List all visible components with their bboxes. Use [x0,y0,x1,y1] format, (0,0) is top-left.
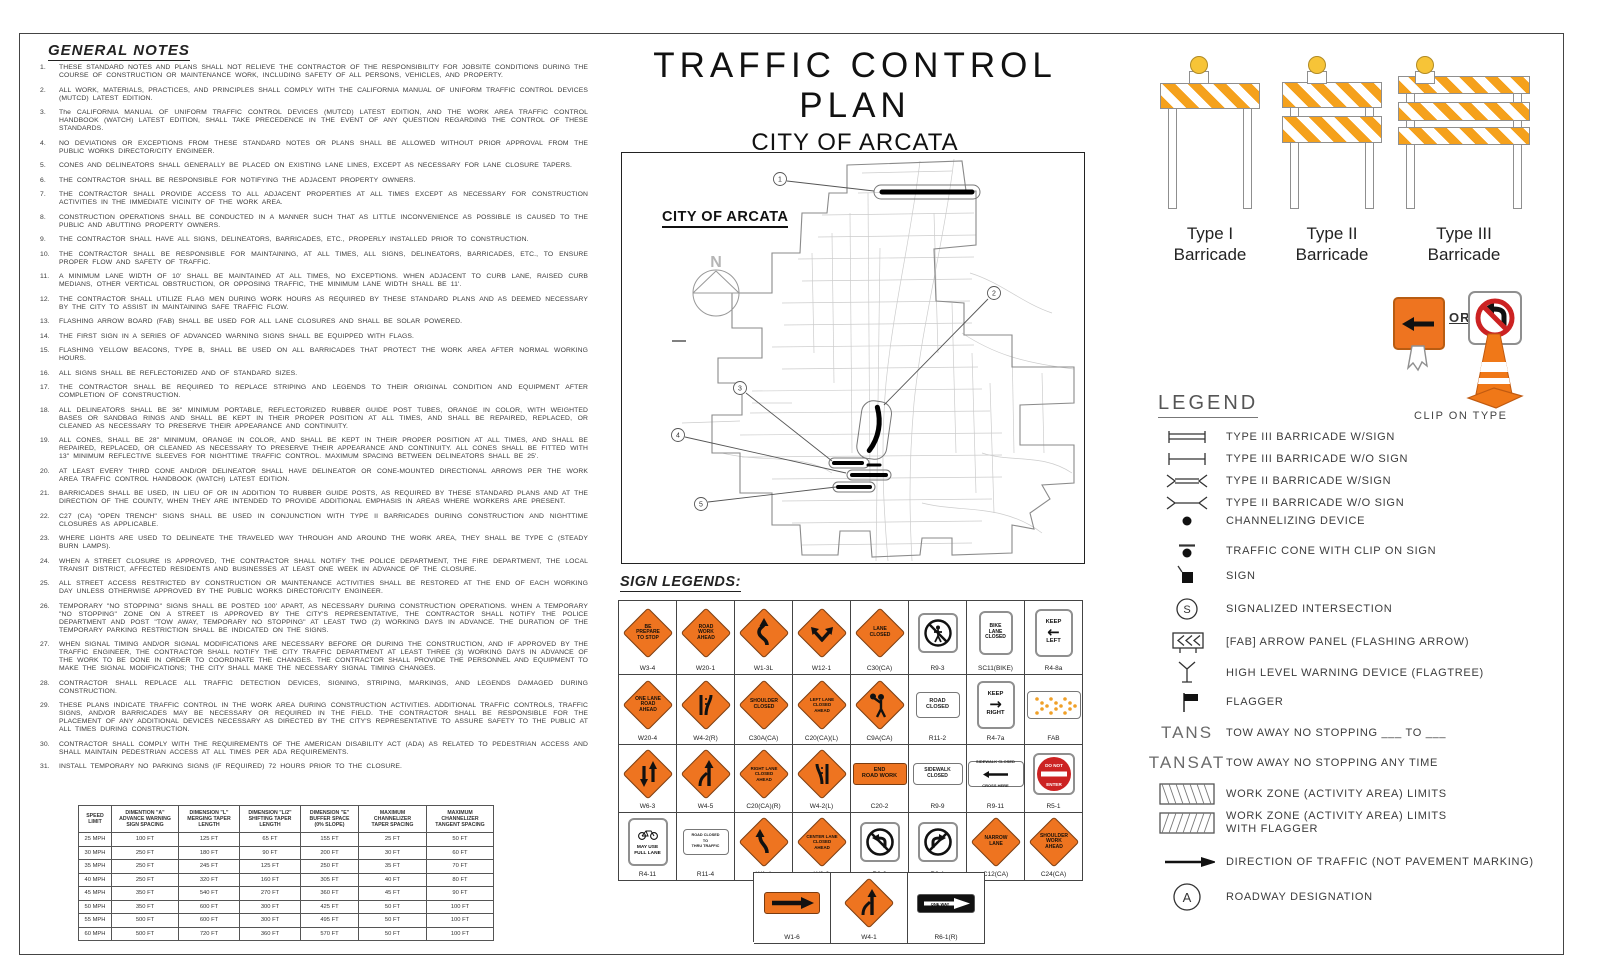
sign-R11-4: ROAD CLOSEDTOTHRU TRAFFICR11-4 [677,813,735,881]
diamond-content: LANECLOSED [857,610,903,656]
general-note: 27.WHEN SIGNAL TIMING AND/OR SIGNAL MODI… [40,641,588,673]
note-text: ALL WORK, MATERIALS, PRACTICES, AND PRIN… [59,87,588,102]
general-note: 2.ALL WORK, MATERIALS, PRACTICES, AND PR… [40,87,588,103]
table-row: 35 MPH250 FT245 FT125 FT250 FT35 FT70 FT [79,860,494,874]
note-text: The CALIFORNIA MANUAL OF UNIFORM TRAFFIC… [59,109,588,132]
table-cell: 90 FT [427,887,494,901]
sign-W4-2(R): W4-2(R) [677,675,735,745]
sign-W4-1: W4-1 [831,873,908,944]
sign-id-label: R4-7a [987,735,1005,742]
regulatory-sign [918,822,958,862]
legend-item: TRAFFIC CONE WITH CLIP ON SIGN [1148,538,1568,564]
note-number: 5. [40,162,54,170]
clip-on-sign-left-arrow [1393,297,1445,350]
general-note: 18.ALL DELINEATORS SHALL BE 36" MINIMUM … [40,407,588,431]
note-text: CONTRACTOR SHALL COMPLY WITH THE REQUIRE… [59,741,588,756]
sign-text-line: TO STOP [637,635,659,641]
note-number: 17. [40,384,54,392]
sign-text-line: CLOSED [869,633,890,639]
fabsym-icon [1148,629,1226,655]
note-text: WHEN A STREET CLOSURE IS APPROVED, THE C… [59,558,588,573]
barricade-label: Type III Barricade [1398,223,1530,265]
diamond-content [683,682,729,728]
diamond-content: SHOULDERWORKAHEAD [1031,819,1077,865]
legend-item-label: TOW AWAY NO STOPPING ___ TO ___ [1226,727,1446,740]
table-cell: 600 FT [179,914,240,928]
sign-graphic: CENTER LANECLOSEDAHEAD [793,813,850,870]
left-arrow-icon [983,765,1009,783]
no-right-turn-icon [923,827,953,857]
sign-id-label: W3-4 [640,665,656,672]
table-row: 55 MPH500 FT600 FT300 FT495 FT50 FT100 F… [79,914,494,928]
note-number: 15. [40,347,54,355]
legend-item: CHANNELIZING DEVICE [1148,508,1568,534]
sign-C30A(CA): SHOULDERCLOSEDC30A(CA) [735,675,793,745]
legend-item: AROADWAY DESIGNATION [1148,884,1568,910]
table-row: 50 MPH350 FT600 FT300 FT425 FT50 FT100 F… [79,900,494,914]
general-note: 6.THE CONTRACTOR SHALL BE RESPONSIBLE FO… [40,177,588,185]
sign-text-line: LEFT LANE [809,696,833,702]
sign-graphic: RIGHT LANECLOSEDAHEAD [735,745,792,802]
spacing-table-body: 25 MPH100 FT125 FT65 FT155 FT25 FT50 FT3… [79,833,494,941]
sign-id-label: W4-2(L) [810,803,833,810]
spacing-table-header: SPEED LIMITDIMENTION "A" ADVANCE WARNING… [79,806,494,833]
sign-text-line: CLOSED [812,839,830,845]
sign-W9-3: CENTER LANECLOSEDAHEADW9-3 [793,813,851,881]
sign-W20-1: ROADWORKAHEADW20-1 [677,601,735,675]
sign-text-line: CLOSED [927,774,948,780]
sign-id-label: R9-9 [930,803,944,810]
svg-text:DO NOT: DO NOT [1045,763,1063,768]
sign-graphic: ONE LANEROADAHEAD [619,675,676,734]
sign-text-line: ROAD WORK [862,774,897,780]
sign-id-label: SC11(BIKE) [978,665,1013,672]
sign-graphic [909,601,966,664]
sign-R4-11: MAY USEFULL LANER4-11 [619,813,677,881]
sign-id-label: W20-1 [696,665,715,672]
general-note: 5.CONES AND DELINEATORS SHALL GENERALLY … [40,162,588,170]
table-row: 40 MPH250 FT320 FT160 FT305 FT40 FT80 FT [79,873,494,887]
sign-id-label: C12(CA) [983,871,1008,878]
legend-item-label: [FAB] ARROW PANEL (FLASHING ARROW) [1226,636,1469,649]
table-cell: 50 FT [359,927,427,941]
note-text: WHEN SIGNAL TIMING AND/OR SIGNAL MODIFIC… [59,641,588,672]
legend-item-label: HIGH LEVEL WARNING DEVICE (FLAGTREE) [1226,667,1484,680]
legend-item-label: ROADWAY DESIGNATION [1226,891,1373,904]
sign-R3-1: R3-1 [909,813,967,881]
note-number: 21. [40,490,54,498]
sign-text-line: AHEAD [756,776,772,782]
sign-legends-heading: SIGN LEGENDS: [620,574,741,592]
sign-graphic: ROADWORKAHEAD [677,601,734,664]
merge-icon [691,759,721,789]
table-cell: 250 FT [112,846,179,860]
legend-item-label: SIGNALIZED INTERSECTION [1226,603,1392,616]
sign-id-label: C30A(CA) [749,735,779,742]
legend-heading: LEGEND [1158,392,1258,418]
legend-item: FLAGGER [1148,689,1568,715]
table-cell: 55 MPH [79,914,112,928]
legend-symbol-text: TANSAT [1148,753,1226,773]
note-text: AT LEAST EVERY THIRD CONE AND/OR DELINEA… [59,468,588,483]
warning-diamond: BEPREPARETO STOP [622,607,673,658]
table-cell: 720 FT [179,927,240,941]
legend-item-label: TOW AWAY NO STOPPING ANY TIME [1226,757,1438,770]
general-note: 1.THESE STANDARD NOTES AND PLANS SHALL N… [40,64,588,80]
table-row: 45 MPH350 FT540 FT270 FT360 FT45 FT90 FT [79,887,494,901]
warning-diamond [738,816,789,867]
sign-FAB: FAB [1025,675,1083,745]
svg-text:4: 4 [676,433,680,440]
diamond-content [857,682,903,728]
sign-text-line: CENTER LANE [806,833,837,839]
note-text: THE FIRST SIGN IN A SERIES OF ADVANCED W… [59,333,414,340]
sign-id-label: W4-2(R) [693,735,718,742]
table-cell: 60 MPH [79,927,112,941]
flag-icon [1148,689,1226,715]
sign-graphic: MAY USEFULL LANE [619,813,676,870]
warning-diamond [680,748,731,799]
note-number: 25. [40,580,54,588]
keep-sign: KEEP→RIGHT [977,681,1015,729]
sign-graphic: ROAD CLOSEDTOTHRU TRAFFIC [677,813,734,870]
diamond-content: SHOULDERCLOSED [741,682,787,728]
note-number: 24. [40,558,54,566]
table-header-cell: DIMENSION "L/2" SHIFTING TAPER LENGTH [240,806,301,833]
sign-id-label: W12-1 [812,665,831,672]
no-ped-icon [923,618,953,648]
sign-graphic: KEEP→RIGHT [967,675,1024,734]
sign-R4-7a: KEEP→RIGHTR4-7a [967,675,1025,745]
note-number: 22. [40,513,54,521]
sign-text-line: CLOSED [985,635,1006,641]
diamond-content [741,819,787,865]
sign-id-label: R4-8a [1045,665,1063,672]
legend-item-label: CHANNELIZING DEVICE [1226,515,1365,528]
svg-text:ENTER: ENTER [1046,782,1062,787]
sign-id-label: C20-2 [871,803,889,810]
sign-C20(CA)(L): LEFT LANECLOSEDAHEADC20(CA)(L) [793,675,851,745]
note-number: 23. [40,535,54,543]
sign-graphic [677,745,734,802]
sign-text-line: CLOSED [926,705,949,711]
note-number: 2. [40,87,54,95]
svg-text:ONE WAY: ONE WAY [931,901,950,906]
sign-R9-9: SIDEWALKCLOSEDR9-9 [909,745,967,813]
note-text: A MINIMUM LANE WIDTH OF 10' SHALL BE MAI… [59,273,588,288]
sign-text-line: AHEAD [814,844,830,850]
legend-item: TANSTOW AWAY NO STOPPING ___ TO ___ [1148,720,1568,746]
one-way-sign: ONE WAY [917,894,975,913]
barricade-board [1398,127,1530,145]
note-text: ALL STREET ACCESS RESTRICTED BY CONSTRUC… [59,580,588,595]
sign-W4-2(L): W4-2(L) [793,745,851,813]
general-note: 7.THE CONTRACTOR SHALL PROVIDE ACCESS TO… [40,191,588,207]
svg-text:3: 3 [738,386,742,393]
warning-diamond [738,607,789,658]
sign-text-line: AHEAD [814,707,830,713]
sign-R9-11: SIDEWALK CLOSEDCROSS HERER9-11 [967,745,1025,813]
sign-legends-grid: BEPREPARETO STOPW3-4ROADWORKAHEADW20-1W1… [618,600,1083,881]
cone-clip-fragment-icon [1400,344,1436,380]
note-text: THE CONTRACTOR SHALL BE REQUIRED TO REPL… [59,384,588,399]
table-cell: 540 FT [179,887,240,901]
table-cell: 65 FT [240,833,301,847]
general-note: 30.CONTRACTOR SHALL COMPLY WITH THE REQU… [40,741,588,757]
diamond-content: NARROWLANE [973,819,1019,865]
sign-graphic [619,745,676,802]
warning-diamond: ROADWORKAHEAD [680,607,731,658]
one-way-arrow-icon: ONE WAY [919,896,973,911]
note-text: THE CONTRACTOR SHALL UTILIZE FLAG MEN DU… [59,296,588,311]
sign-graphic [793,601,850,664]
warning-diamond [796,748,847,799]
general-note: 23.WHERE LIGHTS ARE USED TO DELINEATE TH… [40,535,588,551]
sign-text-line: FULL LANE [634,851,661,857]
svg-text:S: S [1183,604,1190,616]
sign-id-label: C30(CA) [867,665,892,672]
sign-text-line: CROSS HERE [982,783,1008,789]
diamond-content [683,751,729,797]
curve-left-icon [749,827,779,857]
note-number: 30. [40,741,54,749]
merge-icon [854,888,884,918]
legend-item: HIGH LEVEL WARNING DEVICE (FLAGTREE) [1148,660,1568,686]
sign-R6-1(R): ONE WAYR6-1(R) [908,873,985,944]
note-text: INSTALL TEMPORARY NO PARKING SIGNS (IF R… [59,763,402,770]
table-cell: 100 FT [427,914,494,928]
warning-lamp-icon [1416,56,1434,74]
table-cell: 45 FT [359,887,427,901]
legend-item-label: TYPE III BARRICADE W/SIGN [1226,431,1395,444]
dotbar-icon [1148,538,1226,564]
channelizer-spacing-table: SPEED LIMITDIMENTION "A" ADVANCE WARNING… [78,805,494,941]
warning-diamond: CENTER LANECLOSEDAHEAD [796,816,847,867]
note-text: TEMPORARY "NO STOPPING" SIGNS SHALL BE P… [59,603,588,634]
table-header-cell: DIMENSION "L" MERGING TAPER LENGTH [179,806,240,833]
note-text: NO DEVIATIONS OR EXCEPTIONS FROM THESE S… [59,140,588,155]
two-way-icon [633,759,663,789]
note-number: 10. [40,251,54,259]
general-note: 28.CONTRACTOR SHALL REPLACE ALL TRAFFIC … [40,680,588,696]
sign-text-line: CLOSED [753,705,774,711]
general-note: 11.A MINIMUM LANE WIDTH OF 10' SHALL BE … [40,273,588,289]
dot-icon [1148,508,1226,534]
sign-W1-3L: W1-3L [735,601,793,675]
note-number: 12. [40,296,54,304]
table-cell: 125 FT [179,833,240,847]
sign-W6-3: W6-3 [619,745,677,813]
table-cell: 30 MPH [79,846,112,860]
sign-text-line: CLOSED [754,771,772,777]
sign-graphic [735,601,792,664]
general-note: 8.CONSTRUCTION OPERATIONS SHALL BE CONDU… [40,214,588,230]
general-note: 22.C27 (CA) "OPEN TRENCH" SIGNS SHALL BE… [40,513,588,529]
sign-legends-extra-row: W1-6W4-1ONE WAYR6-1(R) [753,872,985,942]
table-cell: 245 FT [179,860,240,874]
sign-text-line: LANE [989,842,1003,848]
note-text: WHERE LIGHTS ARE USED TO DELINEATE THE T… [59,535,588,550]
legend-item: DIRECTION OF TRAFFIC (NOT PAVEMENT MARKI… [1148,849,1568,875]
sign-id-label: W4-1 [861,934,877,941]
sign-graphic [677,675,734,734]
legend-item-label: FLAGGER [1226,696,1283,709]
legend-item: TANSATTOW AWAY NO STOPPING ANY TIME [1148,750,1568,776]
general-note: 10.THE CONTRACTOR SHALL BE RESPONSIBLE F… [40,251,588,267]
page-title: TRAFFIC CONTROL PLAN [600,46,1110,126]
table-cell: 60 FT [427,846,494,860]
note-number: 4. [40,140,54,148]
sign-graphic: BEPREPARETO STOP [619,601,676,664]
sign-SC11(BIKE): BIKELANECLOSEDSC11(BIKE) [967,601,1025,675]
table-cell: 300 FT [240,900,301,914]
svg-text:N: N [710,254,722,271]
table-cell: 570 FT [301,927,359,941]
warning-diamond [854,679,905,730]
legend-item: WORK ZONE (ACTIVITY AREA) LIMITS WITH FL… [1148,810,1568,836]
table-header-cell: MAXIMUM CHANNELIZER TAPER SPACING [359,806,427,833]
note-number: 7. [40,191,54,199]
sign-id-label: R4-11 [639,871,656,878]
diamond-content: LEFT LANECLOSEDAHEAD [799,682,845,728]
legend-item-label: WORK ZONE (ACTIVITY AREA) LIMITS [1226,788,1447,801]
note-number: 13. [40,318,54,326]
regulatory-sign: BIKELANECLOSED [979,611,1013,655]
warning-diamond: LEFT LANECLOSEDAHEAD [796,679,847,730]
fab-panel [1027,691,1081,719]
table-header-cell: SPEED LIMIT [79,806,112,833]
diamond-content: RIGHT LANECLOSEDAHEAD [741,751,787,797]
note-text: FLASHING YELLOW BEACONS, TYPE B, SHALL B… [59,347,588,362]
general-note: 19.ALL CONES, SHALL BE 28" MINIMUM, ORAN… [40,437,588,461]
table-cell: 25 MPH [79,833,112,847]
sign-W4-5: W4-5 [677,745,735,813]
table-cell: 180 FT [179,846,240,860]
warning-diamond: ONE LANEROADAHEAD [622,679,673,730]
sign-graphic [831,873,907,933]
barricade-leg [1168,107,1177,209]
legend-item-label: TYPE III BARRICADE W/O SIGN [1226,453,1408,466]
sign-id-label: R11-4 [697,871,714,878]
sign-graphic [1025,675,1082,734]
double-arrow-icon [807,618,837,648]
note-number: 19. [40,437,54,445]
table-cell: 50 FT [359,914,427,928]
sign-graphic: LEFT LANECLOSEDAHEAD [793,675,850,734]
table-cell: 35 MPH [79,860,112,874]
sign-C20-2: ENDROAD WORKC20-2 [851,745,909,813]
sign-id-label: R9-11 [987,803,1004,810]
barricade-label: Type II Barricade [1282,223,1382,265]
note-number: 6. [40,177,54,185]
sign-W20-4: ONE LANEROADAHEADW20-4 [619,675,677,745]
diamond-content [846,880,892,926]
sign-graphic [754,873,830,933]
barricade-type-1: Type I Barricade [1160,55,1260,265]
sign-graphic: KEEP←LEFT [1025,601,1082,664]
table-cell: 600 FT [179,900,240,914]
sign-W1-6: W1-6 [754,873,831,944]
sign-C20(CA)(R): RIGHT LANECLOSEDAHEADC20(CA)(R) [735,745,793,813]
note-number: 26. [40,603,54,611]
table-header-cell: DIMENTION "A" ADVANCE WARNING SIGN SPACI… [112,806,179,833]
general-note: 31.INSTALL TEMPORARY NO PARKING SIGNS (I… [40,763,588,771]
table-cell: 100 FT [427,900,494,914]
sign-R5-1: DO NOTENTERR5-1 [1025,745,1083,813]
note-number: 16. [40,370,54,378]
lane-ends-right-icon [691,690,721,720]
sign-text-line: THRU TRAFFIC [692,844,720,850]
diamond-content: CENTER LANECLOSEDAHEAD [799,819,845,865]
flagger-icon [865,690,895,720]
table-header-cell: MAXIMUM CHANNELIZER TANGENT SPACING [427,806,494,833]
table-cell: 305 FT [301,873,359,887]
sign-R9-3: R9-3 [909,601,967,675]
barricade-type-3: Type III Barricade [1398,55,1530,265]
legend-item: WORK ZONE (ACTIVITY AREA) LIMITS [1148,781,1568,807]
sign-R11-2: ROADCLOSEDR11-2 [909,675,967,745]
table-cell: 425 FT [301,900,359,914]
hatch1-icon [1148,781,1226,807]
general-note: 20.AT LEAST EVERY THIRD CONE AND/OR DELI… [40,468,588,484]
note-number: 18. [40,407,54,415]
sign-id-label: W4-5 [698,803,714,810]
sign-id-label: W20-4 [638,735,657,742]
svg-text:2: 2 [992,291,996,298]
note-number: 11. [40,273,54,281]
table-cell: 320 FT [179,873,240,887]
table-row: 30 MPH250 FT180 FT90 FT200 FT30 FT60 FT [79,846,494,860]
table-header-cell: DIMENSION "E" BUFFER SPACE (0% SLOPE) [301,806,359,833]
table-cell: 90 FT [240,846,301,860]
table-cell: 200 FT [301,846,359,860]
sqr-icon [1148,563,1226,589]
table-cell: 270 FT [240,887,301,901]
sign-graphic [851,675,908,734]
right-arrow-icon [770,897,814,909]
table-cell: 360 FT [240,927,301,941]
diamond-content [625,751,671,797]
warning-lamp-icon [1190,56,1208,74]
sign-graphic: LANECLOSED [851,601,908,664]
regulatory-sign [860,822,900,862]
table-header-row: SPEED LIMITDIMENTION "A" ADVANCE WARNING… [79,806,494,833]
circA-icon: A [1148,882,1226,912]
left-arrow-icon [1402,315,1436,333]
note-number: 20. [40,468,54,476]
table-cell: 155 FT [301,833,359,847]
table-cell: 350 FT [112,887,179,901]
note-text: THE CONTRACTOR SHALL BE RESPONSIBLE FOR … [59,177,415,184]
note-number: 1. [40,64,54,72]
reverse-curve-icon [749,618,779,648]
table-cell: 40 MPH [79,873,112,887]
diamond-content [741,610,787,656]
table-cell: 50 FT [359,900,427,914]
direction-word: RIGHT [986,711,1004,717]
note-number: 31. [40,763,54,771]
sign-C30(CA): LANECLOSEDC30(CA) [851,601,909,675]
sign-text-line: RIGHT LANE [750,765,777,771]
sign-R3-2: R3-2 [851,813,909,881]
table-cell: 80 FT [427,873,494,887]
regulatory-sign: ROADCLOSED [916,692,960,718]
sign-C9A(CA): C9A(CA) [851,675,909,745]
table-cell: 100 FT [112,833,179,847]
circS-icon: S [1148,596,1226,622]
sign-text-line: AHEAD [639,707,657,713]
warning-diamond: RIGHT LANECLOSEDAHEAD [738,748,789,799]
